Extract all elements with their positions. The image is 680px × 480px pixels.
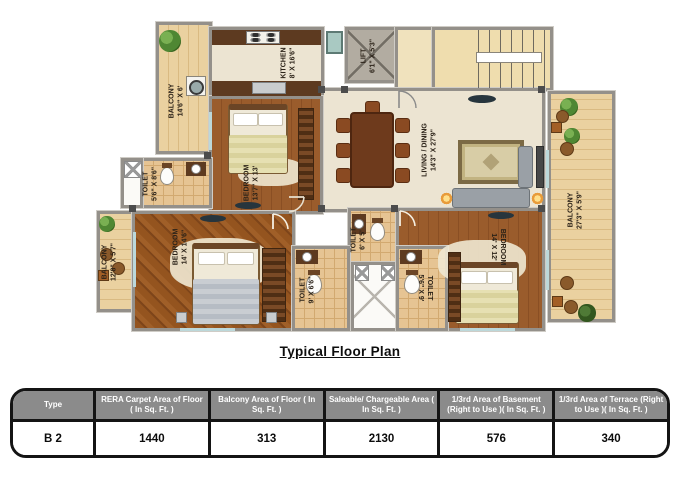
page-title: Typical Floor Plan <box>0 344 680 359</box>
ceiling-fan-icon <box>235 202 261 209</box>
chair-icon <box>560 276 574 290</box>
room-name: BALCONY <box>101 243 110 281</box>
bed-icon <box>228 104 288 174</box>
room-dims: 14'6" X 6' <box>177 84 186 119</box>
washing-machine-icon <box>186 76 206 96</box>
wall-column <box>341 86 348 93</box>
chair-icon <box>564 300 578 314</box>
room-label-bedroom-2: BEDROOM14' X 14'6" <box>172 229 190 266</box>
cell-terrace-area: 340 <box>552 422 667 455</box>
duct-shaft-icon <box>381 265 395 281</box>
stove-icon <box>246 31 280 44</box>
lamp-icon <box>440 192 453 205</box>
room-dims: 14'3" X 27'9" <box>430 123 439 177</box>
chair-icon <box>395 143 410 158</box>
window <box>133 232 136 287</box>
washbasin-icon <box>400 250 422 264</box>
wardrobe-icon <box>262 248 286 322</box>
window <box>546 250 549 290</box>
washbasin-icon <box>186 162 206 176</box>
room-label-living-dining: LIVING / DINING14'3" X 27'9" <box>421 123 439 177</box>
cell-balcony-area: 313 <box>208 422 323 455</box>
plant-icon <box>159 30 181 52</box>
chair-icon <box>336 143 351 158</box>
column-header-balcony-area: Balcony Area of Floor ( In Sq. Ft. ) <box>208 391 323 422</box>
column-header-basement-area: 1/3rd Area of Basement (Right to Use )( … <box>437 391 552 422</box>
window <box>180 328 235 331</box>
room-name: TOILET <box>350 228 359 253</box>
room-dims: 5'6" X 9' <box>415 275 424 302</box>
room-dims: 12'8" X 5'7" <box>110 243 119 281</box>
window <box>209 112 212 150</box>
room-label-lift: LIFT6'1" X 5'3" <box>360 39 378 73</box>
room-dims: 9' X 6'6" <box>308 277 317 304</box>
washbasin-icon <box>296 250 318 264</box>
room-name: TOILET <box>424 275 433 302</box>
room-name: BALCONY <box>168 84 177 119</box>
room-dims: 14' X 12' <box>488 229 497 266</box>
door-arc <box>399 210 416 227</box>
toilet-wc-icon <box>160 167 174 185</box>
chair-icon <box>395 118 410 133</box>
lamp-icon <box>531 192 544 205</box>
side-table-icon <box>551 122 562 133</box>
cell-basement-area: 576 <box>437 422 552 455</box>
side-table-icon <box>266 312 277 323</box>
room-label-bedroom-1: BEDROOM13'7" X 13' <box>243 165 261 202</box>
area-table: Type RERA Carpet Area of Floor ( In Sq. … <box>10 388 670 458</box>
room-label-bedroom-3: BEDROOM14' X 12' <box>488 229 506 266</box>
sofa-icon <box>452 188 530 208</box>
sink-icon <box>252 82 286 94</box>
room-name: BEDROOM <box>243 165 252 202</box>
bed-icon <box>455 262 519 324</box>
cell-saleable-area: 2130 <box>323 422 438 455</box>
door-arc <box>398 90 417 109</box>
room-dims: 6'1" X 5'3" <box>369 39 378 73</box>
room-label-balcony-top: BALCONY14'6" X 6' <box>168 84 186 119</box>
room-label-kitchen: KITCHEN8' X 16'6" <box>280 47 298 78</box>
room-dims: 5'6" X 8'6" <box>151 167 160 201</box>
room-label-toilet-2: TOILET9' X 6'6" <box>299 277 317 304</box>
wall-column <box>129 205 136 212</box>
wall-column <box>391 205 398 212</box>
plant-icon <box>99 216 115 232</box>
room-dims: 27'3" X 5'9" <box>576 191 585 229</box>
chair-icon <box>560 142 574 156</box>
ceiling-fan-icon <box>200 215 226 222</box>
window <box>460 328 515 331</box>
duct-shaft-icon <box>355 265 369 281</box>
chair-icon <box>336 118 351 133</box>
door-arc <box>272 213 289 230</box>
dining-table-icon <box>350 112 394 188</box>
wall-column <box>538 86 545 93</box>
wall-column <box>204 152 211 159</box>
column-header-type: Type <box>13 391 93 422</box>
console-icon <box>468 95 496 103</box>
column-header-terrace-area: 1/3rd Area of Terrace (Right to Use )( I… <box>552 391 667 422</box>
ceiling-fan-icon <box>488 212 514 219</box>
column-header-carpet-area: RERA Carpet Area of Floor ( In Sq. Ft. ) <box>93 391 208 422</box>
refrigerator-icon <box>326 31 343 54</box>
cell-type: B 2 <box>13 422 93 455</box>
wardrobe-icon <box>448 252 461 322</box>
room-name: KITCHEN <box>280 47 289 78</box>
side-table-icon <box>552 296 563 307</box>
room-label-toilet-1: TOILET5'6" X 8'6" <box>142 167 160 201</box>
wall-column <box>538 205 545 212</box>
wardrobe-icon <box>298 108 314 200</box>
floor-plan-page: BALCONY14'6" X 6' KITCHEN8' X 16'6" LIFT… <box>0 0 680 480</box>
duct-shaft-icon <box>124 161 142 178</box>
room-dims: 8' X 16'6" <box>289 47 298 78</box>
toilet-wc-icon <box>370 222 385 241</box>
room-label-toilet-3: TOILET6' X 5' <box>350 228 368 253</box>
room-name: BEDROOM <box>172 229 181 266</box>
room-name: LIFT <box>360 39 369 73</box>
room-dims: 6' X 5' <box>359 228 368 253</box>
room-name: TOILET <box>142 167 151 201</box>
wall-column <box>318 86 325 93</box>
room-dims: 13'7" X 13' <box>252 165 261 202</box>
room-label-balcony-right: BALCONY27'3" X 5'9" <box>567 191 585 229</box>
room-dims: 14' X 14'6" <box>181 229 190 266</box>
column-header-saleable-area: Saleable/ Chargeable Area ( In Sq. Ft. ) <box>323 391 438 422</box>
room-label-balcony-left: BALCONY12'8" X 5'7" <box>101 243 119 281</box>
room-label-toilet-4: TOILET5'6" X 9' <box>415 275 433 302</box>
window <box>546 150 549 188</box>
sofa-icon <box>518 146 533 188</box>
cell-carpet-area: 1440 <box>93 422 208 455</box>
room-name: TOILET <box>299 277 308 304</box>
chair-icon <box>395 168 410 183</box>
room-name: BEDROOM <box>497 229 506 266</box>
bed-icon <box>192 243 260 325</box>
room-name: BALCONY <box>567 191 576 229</box>
door-arc <box>288 196 305 213</box>
tv-unit-icon <box>536 146 544 188</box>
room-name: LIVING / DINING <box>421 123 430 177</box>
room-lobby <box>395 27 435 91</box>
wall-column <box>318 205 325 212</box>
chair-icon <box>336 168 351 183</box>
stair-landing <box>476 52 542 63</box>
side-table-icon <box>176 312 187 323</box>
plant-icon <box>578 304 596 322</box>
